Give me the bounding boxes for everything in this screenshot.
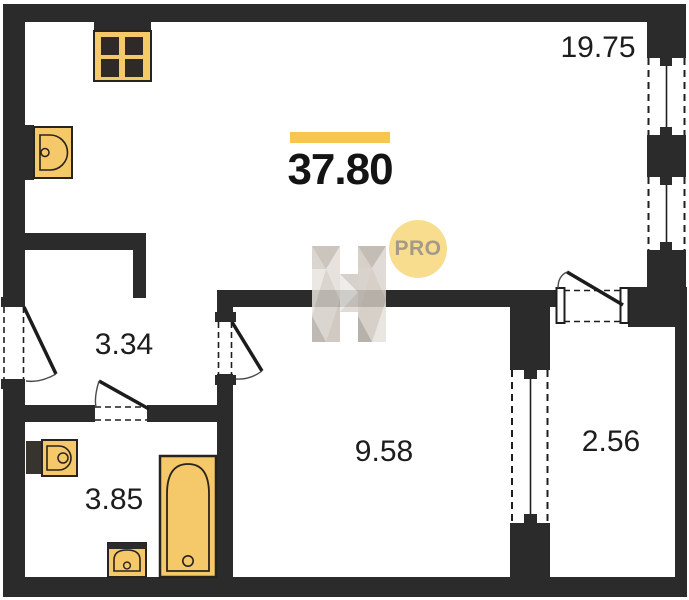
bathtub-icon bbox=[160, 456, 216, 577]
wall-segment bbox=[3, 577, 687, 597]
wall-segment bbox=[647, 4, 686, 53]
floorplan: 37.80 19.75 3.34 9.58 2.56 3.85 PRO bbox=[0, 0, 689, 600]
door-post bbox=[557, 288, 565, 323]
entrance-door-leaf bbox=[24, 307, 56, 374]
wall-segment bbox=[647, 255, 686, 287]
balcony-door-leaf bbox=[567, 272, 623, 305]
room-area-label-loggia: 2.56 bbox=[582, 425, 640, 459]
window-frame-cap bbox=[524, 514, 537, 523]
wall-segment bbox=[3, 384, 25, 597]
wall-segment bbox=[647, 140, 686, 172]
window-frame-cap bbox=[660, 127, 672, 135]
room-area-label-hallway: 3.34 bbox=[95, 328, 153, 362]
watermark-h-logo-icon bbox=[312, 246, 386, 342]
bathroom-door-leaf bbox=[99, 381, 149, 409]
window-sill bbox=[647, 250, 686, 255]
window-sill bbox=[647, 172, 686, 177]
toilet-icon bbox=[108, 543, 146, 577]
wall-segment bbox=[25, 233, 146, 250]
window-frame-cap bbox=[660, 177, 672, 185]
washbasin-icon bbox=[26, 440, 77, 476]
wall-segment bbox=[510, 523, 550, 577]
room-door-leaf bbox=[232, 322, 262, 371]
wall-segment bbox=[217, 290, 556, 307]
wall-segment bbox=[675, 327, 687, 577]
window-sill bbox=[647, 53, 686, 58]
stove-icon bbox=[94, 22, 151, 81]
window-frame-cap bbox=[524, 370, 537, 379]
window-frame-cap bbox=[660, 242, 672, 250]
kitchen-sink-icon bbox=[25, 125, 72, 180]
door-post bbox=[215, 312, 236, 322]
total-area-label: 37.80 bbox=[287, 145, 392, 195]
wall-segment bbox=[510, 307, 550, 370]
window-frame-cap bbox=[660, 58, 672, 66]
wall-segment bbox=[3, 4, 25, 300]
accent-bar bbox=[290, 132, 390, 143]
wall-segment bbox=[628, 287, 687, 327]
room-area-label-living-kitchen: 19.75 bbox=[560, 31, 635, 65]
wall-segment bbox=[25, 405, 95, 422]
door-post bbox=[215, 375, 236, 385]
room-area-label-bathroom: 3.85 bbox=[85, 483, 143, 517]
wall-segment bbox=[147, 405, 233, 422]
pro-badge-label: PRO bbox=[394, 237, 441, 261]
wall-segment bbox=[133, 250, 146, 298]
door-post bbox=[1, 379, 25, 389]
pro-badge: PRO bbox=[389, 220, 447, 278]
room-area-label-room: 9.58 bbox=[355, 435, 413, 469]
window-sill bbox=[647, 135, 686, 140]
wall-segment bbox=[3, 4, 686, 22]
door-post bbox=[1, 297, 25, 307]
